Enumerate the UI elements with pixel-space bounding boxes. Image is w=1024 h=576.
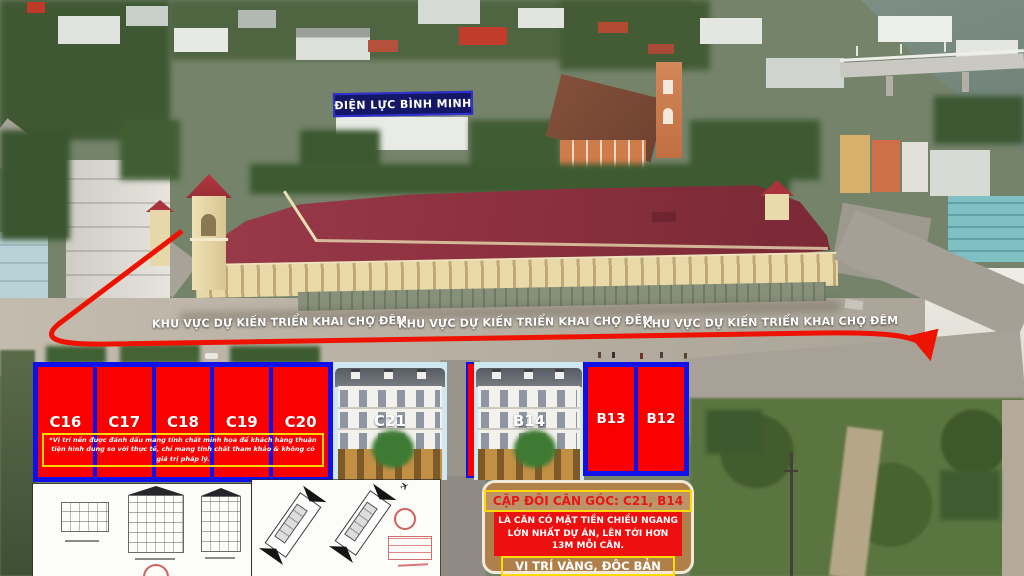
promo-footer: VỊ TRÍ VÀNG, ĐỘC BẢN [501,556,675,576]
lot-label: C18 [167,413,199,431]
photo-detail [274,503,308,544]
lot-label: C17 [108,413,140,431]
photo-detail [766,58,844,88]
promo-card: CẶP ĐÔI CĂN GÓC: C21, B14 LÀ CĂN CÓ MẶT … [482,480,694,574]
north-arrow-icon: ✈ [398,480,411,494]
photo-detail [459,27,507,45]
photo-detail [238,10,276,28]
photo-detail [555,369,564,379]
photo-detail [201,214,216,236]
photo-detail [944,42,946,52]
render-label: C21 [333,412,447,430]
photo-detail [856,46,858,56]
photo-detail [988,40,990,50]
real-estate-promo-image: ĐIỆN LỰC BÌNH MINH KHU VỰC DỰ KIẾN TRIỂN… [0,0,1024,576]
photo-detail [652,212,676,223]
photo-detail [120,344,200,364]
photo-detail [612,352,615,358]
photo-detail [765,194,789,220]
promo-heading: CẶP ĐÔI CĂN GÓC: C21, B14 [484,490,692,512]
photo-detail [368,40,398,52]
photo-detail [663,108,673,124]
photo-detail [205,557,235,559]
lot-label: C20 [285,413,317,431]
photo-detail [150,210,170,266]
photo-detail [840,135,870,193]
lot-label: C16 [49,413,81,431]
photo-detail [0,130,70,240]
photo-detail [492,369,501,379]
photo-detail [478,407,579,409]
photo-detail [518,8,564,28]
photo-detail [886,76,893,96]
photo-detail [120,120,180,180]
photo-detail [351,369,360,379]
photo-detail [648,44,674,54]
photo-detail [560,0,710,70]
photo-detail [65,540,99,542]
lot-label: B13 [596,411,625,427]
red-stamp [143,564,169,576]
photo-detail [700,18,762,44]
photo-detail [514,430,556,468]
market-tower [186,174,232,198]
lot-cell-b13: B13 [586,365,636,473]
photo-detail [598,22,628,33]
photo-detail [27,2,45,13]
photo-detail [934,96,1024,144]
photo-detail [135,558,175,560]
red-stamp [394,508,416,530]
lot-disclaimer: *Vị trí nền được đánh dấu mang tính chất… [42,433,324,467]
photo-detail [878,16,952,42]
photo-detail [663,80,673,94]
photo-detail [128,486,184,495]
site-plan-sheet: ✈ [252,480,440,576]
photo-detail [524,369,533,379]
elevation-drawing-sheet [33,484,251,576]
photo-detail [948,196,1024,262]
photo-detail [481,390,578,407]
power-station-label: ĐIỆN LỰC BÌNH MINH [333,91,473,117]
photo-detail [706,410,762,454]
photo-detail [940,470,1000,520]
photo-detail [384,369,393,379]
lot-block-c: C16 C17 C18 C19 C20 *Vị trí nền được đán… [33,362,333,482]
photo-detail [872,140,900,192]
photo-detail [372,430,414,468]
promo-body: LÀ CĂN CÓ MẶT TIỀN CHIỀU NGANG LỚN NHẤT … [494,512,682,556]
site-plan-drawing [335,490,392,556]
photo-detail [126,6,168,26]
lot-cell-b12: B12 [636,365,686,473]
photo-detail [598,352,601,358]
photo-detail [962,72,969,92]
elevation-drawing [128,495,184,553]
elevation-drawing [201,496,241,552]
photo-detail [398,563,428,567]
photo-detail [900,44,902,54]
photo-detail [660,352,663,358]
photo-detail [902,142,928,192]
photo-detail [388,536,432,560]
photo-detail [338,407,443,409]
photo-detail [930,150,990,196]
photo-detail [438,476,486,576]
photo-detail [640,353,643,359]
photo-detail [1002,400,1024,576]
elevation-drawing [61,502,109,532]
market-tower [192,196,226,290]
lot-block-b: B13 B12 [583,362,689,476]
photo-detail [418,0,480,24]
photo-detail [340,390,440,407]
lot-label: B12 [646,411,675,427]
photo-detail [417,369,426,379]
photo-detail [205,353,218,359]
lot-label: C19 [226,413,258,431]
render-label: B14 [474,412,584,430]
photo-detail [174,28,228,52]
photo-detail [0,350,35,576]
photo-detail [296,28,370,60]
photo-detail [58,16,120,44]
photo-detail [784,470,798,472]
photo-detail [201,488,241,496]
site-plan-drawing [265,492,322,558]
photo-detail [344,501,378,542]
photo-detail [470,120,560,170]
photo-detail [190,238,228,241]
townhouse-render-b14: B14 [474,362,584,480]
townhouse-render-c21: C21 [333,362,447,480]
